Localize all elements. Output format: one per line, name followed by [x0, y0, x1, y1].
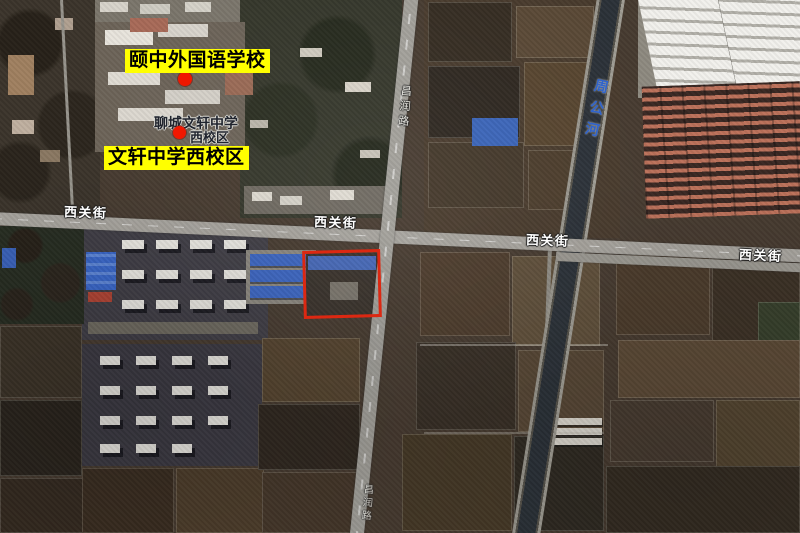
red-roof-building	[88, 292, 112, 302]
apartment-building	[122, 270, 144, 279]
field-patch	[0, 400, 82, 476]
field-patch	[428, 2, 512, 62]
field-patch	[0, 478, 84, 533]
greenhouse	[548, 438, 602, 445]
building	[280, 196, 302, 205]
apartment-building	[190, 240, 212, 249]
building	[8, 55, 34, 95]
residential-estate	[82, 344, 262, 466]
building	[345, 82, 371, 92]
tree-area	[0, 0, 100, 215]
building	[100, 2, 128, 12]
field-patch	[82, 468, 174, 533]
apartment-building	[136, 356, 156, 365]
apartment-building	[100, 356, 120, 365]
field-patch	[262, 472, 360, 533]
poi-marker-dot	[173, 126, 186, 139]
building	[300, 48, 322, 57]
apartment-building	[172, 416, 192, 425]
field-patch	[428, 142, 524, 208]
field-patch	[618, 340, 800, 398]
apartment-building	[172, 356, 192, 365]
apartment-building	[156, 300, 178, 309]
highlight-rectangle	[302, 249, 382, 319]
apartment-building	[190, 270, 212, 279]
apartment-building	[172, 386, 192, 395]
apartment-building	[122, 240, 144, 249]
blue-roof-building	[2, 248, 16, 268]
field-patch	[258, 404, 360, 470]
apartment-building	[190, 300, 212, 309]
annotation-label-west-campus: 文轩中学西校区	[104, 146, 249, 170]
apartment-building	[208, 386, 228, 395]
street-label-west-street: 西关街	[739, 244, 783, 265]
field-patch	[0, 326, 82, 398]
tree-area	[0, 226, 84, 324]
street-label-west-street: 西关街	[526, 229, 570, 250]
apartment-building	[208, 416, 228, 425]
housing-area	[642, 81, 800, 218]
building	[252, 192, 272, 201]
annotation-marker-dot	[178, 72, 192, 86]
building	[185, 2, 211, 12]
building	[140, 4, 170, 14]
annotation-label-foreign-language-school: 颐中外国语学校	[125, 49, 270, 73]
field-patch	[420, 252, 510, 336]
apartment-building	[136, 444, 156, 453]
street-label-west-street: 西关街	[314, 211, 358, 232]
field-patch	[176, 468, 264, 533]
field-patch	[262, 338, 360, 402]
street-label-west-street: 西关街	[64, 201, 108, 222]
apartment-building	[172, 444, 192, 453]
apartment-building	[224, 300, 246, 309]
apartment-building	[224, 240, 246, 249]
building	[165, 90, 220, 104]
vertical-road-label: 昌润路	[394, 84, 414, 130]
vertical-road-label: 昌润路	[357, 483, 375, 523]
field-patch	[716, 400, 800, 470]
poi-label-campus: 西校区	[190, 127, 229, 146]
apartment-building	[100, 386, 120, 395]
field-path	[424, 432, 604, 434]
building	[108, 72, 160, 85]
field-patch	[606, 466, 800, 533]
apartment-building	[156, 270, 178, 279]
field-patch	[402, 434, 512, 531]
field-patch	[416, 342, 516, 430]
blue-roof-building	[472, 118, 518, 146]
building	[12, 120, 34, 134]
playground	[86, 252, 116, 290]
apartment-building	[224, 270, 246, 279]
apartment-building	[208, 356, 228, 365]
field-path	[420, 344, 608, 346]
building	[130, 18, 168, 32]
building	[250, 120, 268, 128]
apartment-building	[100, 416, 120, 425]
apartment-building	[100, 444, 120, 453]
field-patch	[516, 6, 594, 58]
satellite-map-image: 西关街 西关街 西关街 西关街 周公河 昌润路 昌润路 聊城文轩中学 西校区 颐…	[0, 0, 800, 533]
building-row	[88, 322, 258, 334]
apartment-building	[136, 386, 156, 395]
apartment-building	[156, 240, 178, 249]
apartment-building	[136, 416, 156, 425]
building	[330, 190, 354, 200]
building	[40, 150, 60, 162]
building	[105, 30, 153, 45]
apartment-building	[122, 300, 144, 309]
building	[360, 150, 380, 158]
field-patch	[610, 400, 714, 462]
